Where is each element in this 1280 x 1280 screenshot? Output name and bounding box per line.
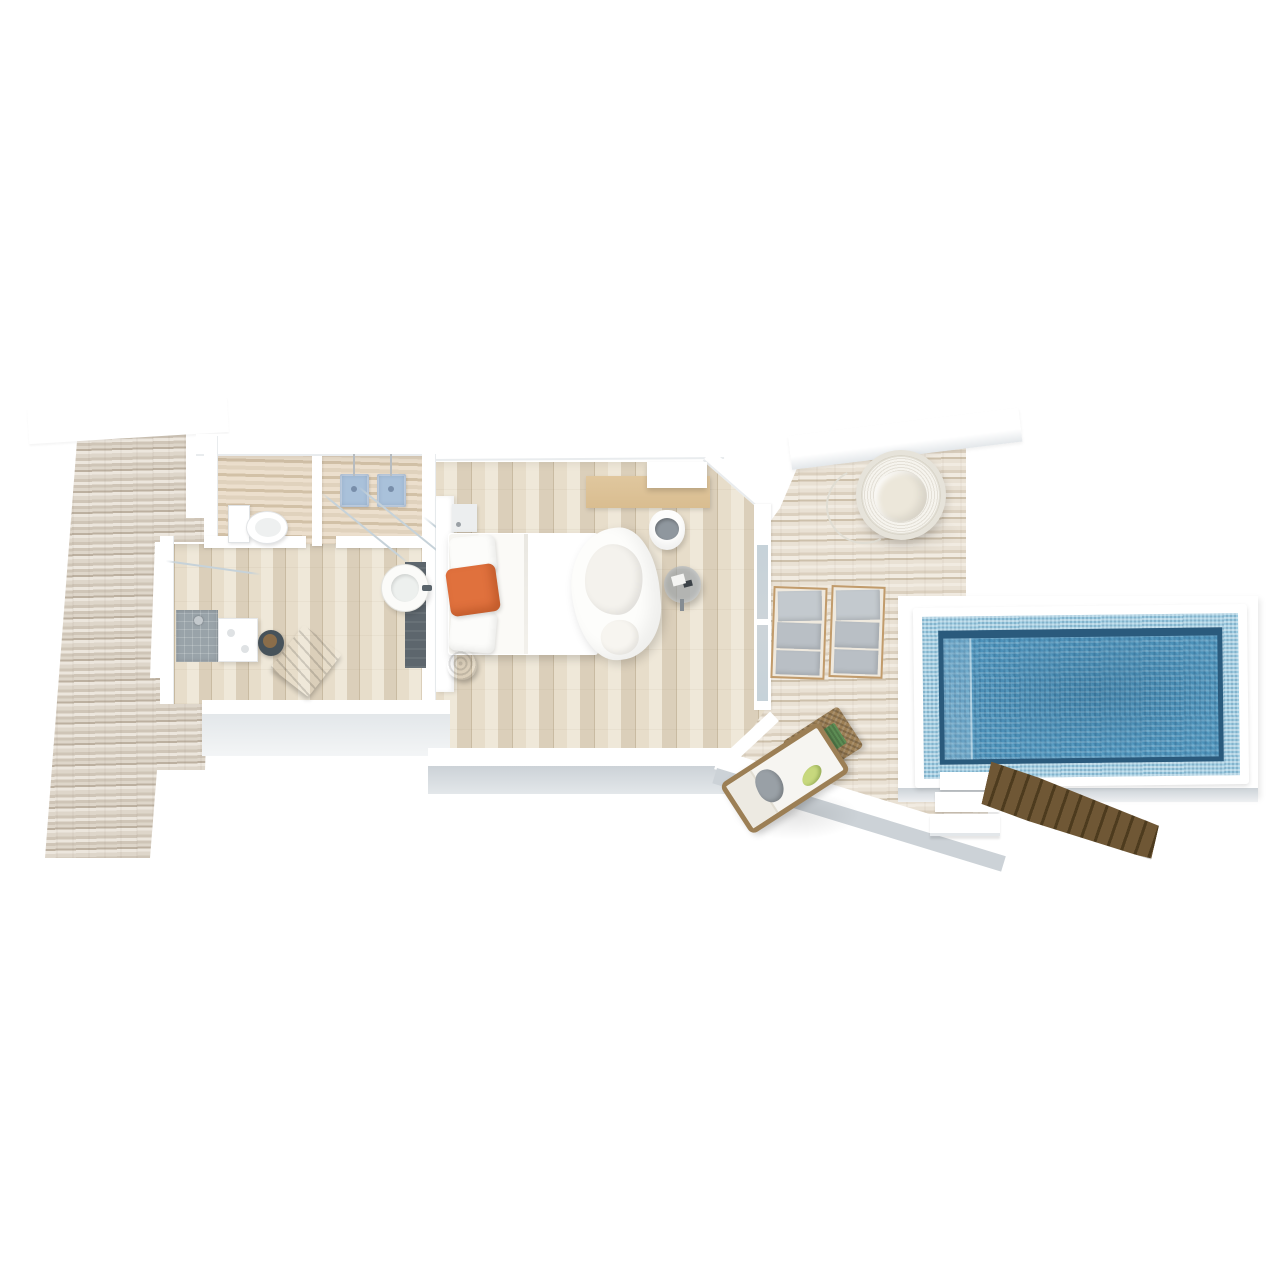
hanging-egg-chair: [856, 450, 946, 540]
wall-bottom-bedroom: [428, 748, 734, 768]
pool-wall: [938, 627, 1224, 764]
floor-plan-scene: [0, 0, 1280, 1280]
round-washbasin: [381, 564, 429, 612]
wall-bottom-utility-face: [202, 714, 450, 756]
sun-lounger-left: [770, 586, 827, 680]
pool-step-3: [930, 814, 1000, 836]
lounger-backrest: [836, 590, 881, 621]
vanity-stool: [258, 630, 284, 656]
sliding-door-glass-lower: [756, 624, 769, 702]
lounger-seat: [776, 622, 821, 650]
daybed-green-pillow: [799, 761, 826, 789]
wall-basin-right: [377, 474, 406, 507]
lounger-seat: [835, 621, 880, 649]
sliding-door-glass-upper: [756, 544, 769, 620]
wall-left: [204, 436, 218, 548]
pool-water: [943, 635, 1218, 759]
desk-chair: [649, 510, 685, 550]
shower-head: [194, 616, 203, 625]
bath-counter: [218, 618, 258, 662]
wall-shelf: [647, 462, 707, 488]
pool: [913, 604, 1249, 788]
lounger-footrest: [834, 649, 879, 675]
side-table: [664, 566, 701, 603]
wall-top-bedroom: [428, 429, 724, 461]
bed-duvet-fold: [524, 534, 528, 654]
lounger-footrest: [776, 650, 821, 676]
wall-bottom-bedroom-face: [428, 766, 734, 794]
nightstand: [452, 504, 477, 532]
pool-tanning-shelf: [943, 638, 972, 759]
wall-wc-divider: [312, 456, 322, 546]
lounger-backrest: [778, 591, 823, 622]
sun-lounger-right: [828, 585, 885, 679]
sun-loungers: [770, 583, 889, 683]
orange-accent-pillow: [445, 563, 501, 617]
toilet-bowl: [246, 511, 288, 544]
round-timber-stool: [447, 650, 477, 680]
wall-top-bathroom: [196, 434, 436, 456]
